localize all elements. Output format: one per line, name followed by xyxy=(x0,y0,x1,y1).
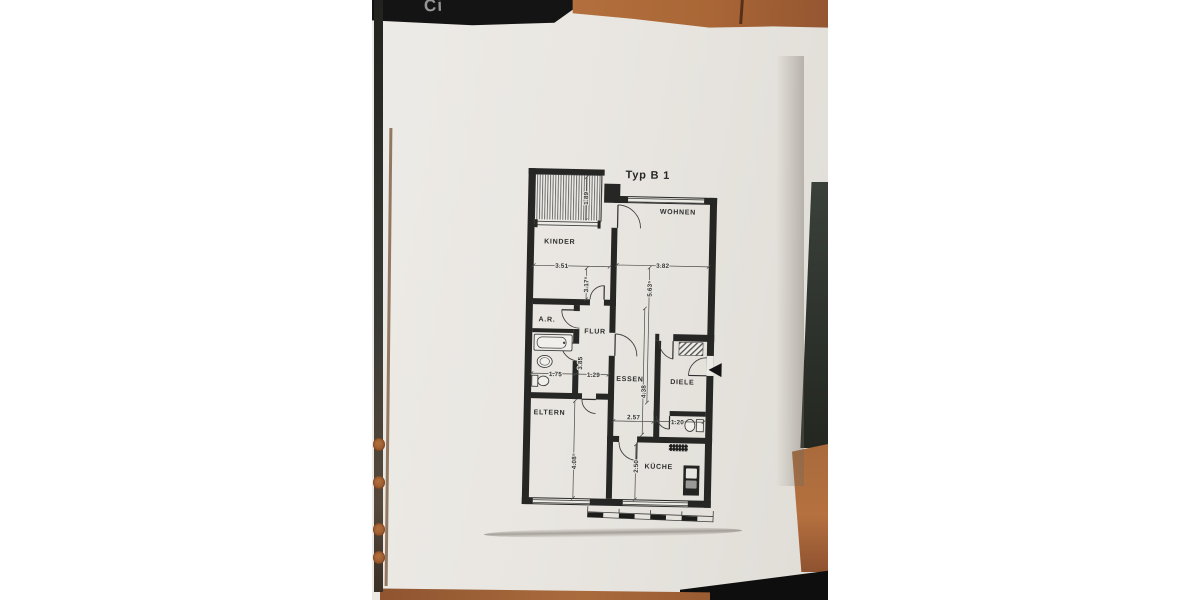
toilet-wc xyxy=(685,419,704,431)
punch-hole xyxy=(373,438,385,451)
dim-kueche-depth: 2.50 xyxy=(633,459,640,472)
room-label-wohnen: WOHNEN xyxy=(660,209,696,217)
punch-hole xyxy=(373,523,385,536)
dim-balcony-depth: 1.89 xyxy=(583,191,590,204)
wooden-desk-bottom xyxy=(380,584,710,600)
room-label-diele: DIELE xyxy=(670,379,694,387)
room-label-abstellraum: A.R. xyxy=(538,316,555,323)
kitchen-sink-unit xyxy=(683,465,700,495)
screenshot-canvas: Ci xyxy=(0,0,1200,600)
dim-eltern-depth: 4.08⁵ xyxy=(571,453,578,469)
floorplan-sheet: Typ B 1 1.89 xyxy=(501,146,739,551)
dim-wc-width: 1.20 xyxy=(671,419,684,426)
balcony: 1.89 xyxy=(528,168,605,222)
floorplan-drawing: Typ B 1 1.89 xyxy=(501,146,739,551)
balcony-hatch xyxy=(535,174,602,221)
binder-edge-left xyxy=(374,0,383,592)
dim-bath-width: 1.75 xyxy=(549,371,562,378)
folder-partial-logo-text: Ci xyxy=(424,0,444,16)
plan-title: Typ B 1 xyxy=(625,169,670,182)
room-label-essen: ESSEN xyxy=(616,376,643,384)
sink xyxy=(537,355,552,367)
punch-hole xyxy=(373,476,385,489)
dim-wohnen-essen-depth: 5.63⁵ xyxy=(647,280,654,296)
dim-wohnen-width: 3.82 xyxy=(656,263,669,270)
dim-kinder-depth: 3.17⁵ xyxy=(583,276,590,292)
paper-crease-left xyxy=(385,128,392,586)
dim-kinder-width: 3.51 xyxy=(555,263,568,270)
punch-hole xyxy=(373,551,385,564)
floorplan-photo: Ci xyxy=(372,0,828,600)
shaft-dotted xyxy=(669,444,688,451)
dim-essen-width: 2.57 xyxy=(627,414,640,421)
room-label-kinder: KINDER xyxy=(544,238,575,246)
dim-flur-width: 1.29 xyxy=(587,372,600,379)
scale-bar xyxy=(587,506,713,522)
room-label-flur: FLUR xyxy=(584,328,606,335)
paper-curve-shadow xyxy=(776,56,804,486)
dim-essen-depth: 4.38 xyxy=(640,385,647,398)
dim-bath-depth: 3.85 xyxy=(577,356,584,369)
shaft-hatch xyxy=(679,342,703,355)
room-label-kueche: KÜCHE xyxy=(644,462,673,472)
bathtub xyxy=(534,334,572,351)
room-label-eltern: ELTERN xyxy=(534,409,566,417)
toilet-bath xyxy=(532,375,549,386)
